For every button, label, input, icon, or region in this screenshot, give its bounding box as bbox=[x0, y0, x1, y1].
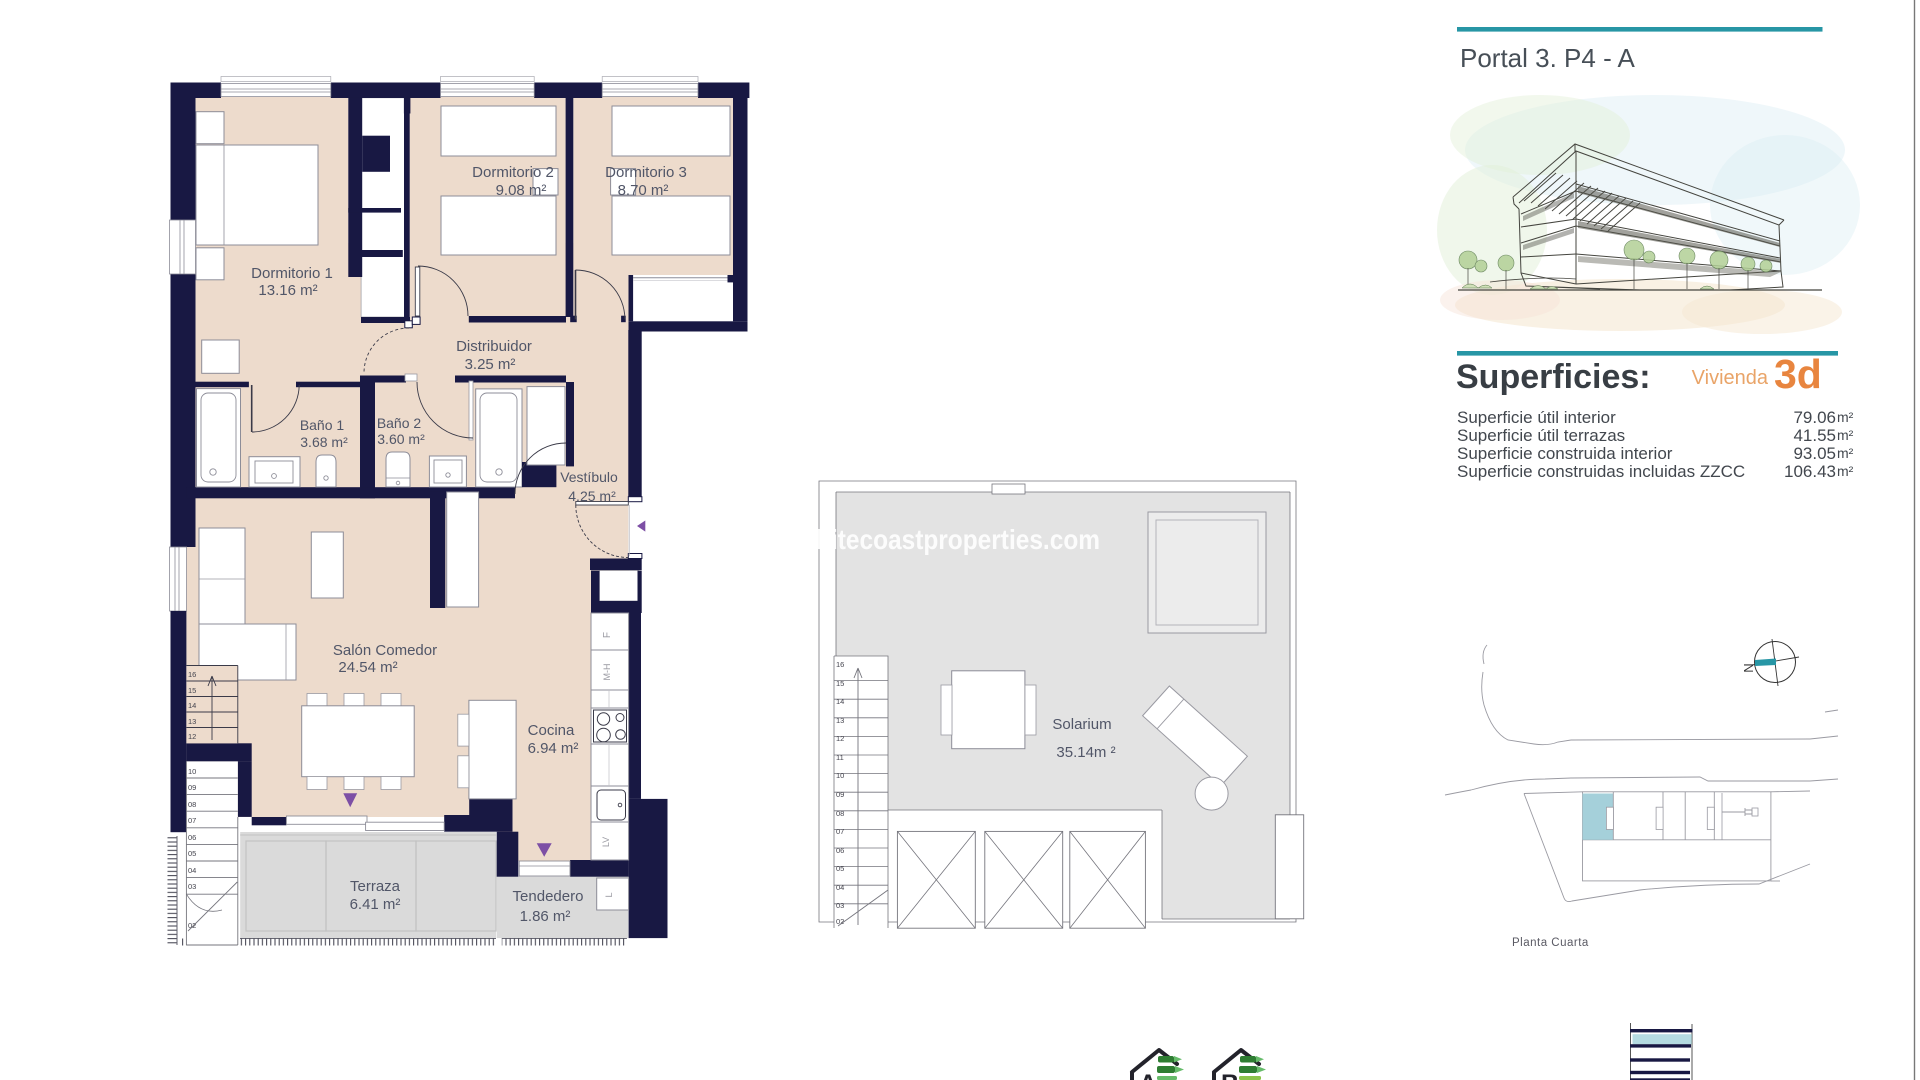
svg-text:03: 03 bbox=[188, 882, 196, 891]
svg-text:12: 12 bbox=[836, 734, 844, 743]
svg-text:02: 02 bbox=[188, 921, 196, 930]
svg-text:3.68 m²: 3.68 m² bbox=[300, 434, 348, 450]
svg-text:Superficies:: Superficies: bbox=[1456, 358, 1651, 396]
svg-text:Salón Comedor: Salón Comedor bbox=[333, 642, 437, 659]
svg-text:06: 06 bbox=[836, 846, 844, 855]
svg-text:41.55: 41.55 bbox=[1793, 426, 1836, 445]
svg-text:24.54 m²: 24.54 m² bbox=[338, 659, 397, 676]
svg-text:12: 12 bbox=[188, 732, 196, 741]
svg-text:Tendedero: Tendedero bbox=[513, 888, 584, 905]
svg-text:07: 07 bbox=[188, 816, 196, 825]
svg-text:Baño 1: Baño 1 bbox=[300, 417, 345, 433]
svg-text:05: 05 bbox=[836, 864, 844, 873]
svg-text:9.08 m²: 9.08 m² bbox=[496, 182, 547, 199]
svg-text:10: 10 bbox=[188, 767, 196, 776]
svg-text:15: 15 bbox=[188, 686, 196, 695]
svg-text:1.86 m²: 1.86 m² bbox=[520, 908, 571, 925]
svg-text:79.06: 79.06 bbox=[1793, 408, 1836, 427]
svg-text:Planta Cuarta: Planta Cuarta bbox=[1512, 937, 1589, 949]
svg-text:whitecoastproperties.com: whitecoastproperties.com bbox=[796, 524, 1100, 555]
svg-text:6.41 m²: 6.41 m² bbox=[350, 896, 401, 913]
svg-text:3d: 3d bbox=[1774, 351, 1822, 397]
svg-text:4.25 m²: 4.25 m² bbox=[568, 488, 616, 504]
svg-text:6.94 m²: 6.94 m² bbox=[528, 740, 579, 757]
svg-text:m²: m² bbox=[1837, 409, 1854, 425]
svg-text:106.43: 106.43 bbox=[1784, 462, 1836, 481]
svg-text:Superficie construidas incluid: Superficie construidas incluidas ZZCC bbox=[1457, 462, 1745, 481]
svg-text:16: 16 bbox=[836, 660, 844, 669]
svg-text:11: 11 bbox=[836, 753, 844, 762]
svg-text:Vestíbulo: Vestíbulo bbox=[560, 469, 618, 485]
svg-text:15: 15 bbox=[836, 679, 844, 688]
svg-text:N: N bbox=[1741, 663, 1756, 672]
svg-text:14: 14 bbox=[188, 701, 196, 710]
svg-text:Dormitorio 2: Dormitorio 2 bbox=[472, 164, 554, 181]
svg-text:09: 09 bbox=[188, 783, 196, 792]
svg-text:06: 06 bbox=[188, 833, 196, 842]
svg-text:Cocina: Cocina bbox=[528, 722, 575, 739]
svg-text:m²: m² bbox=[1837, 427, 1854, 443]
svg-text:8.70 m²: 8.70 m² bbox=[618, 182, 669, 199]
svg-text:13: 13 bbox=[836, 716, 844, 725]
svg-text:04: 04 bbox=[836, 883, 844, 892]
svg-text:Dormitorio 1: Dormitorio 1 bbox=[251, 265, 333, 282]
svg-text:Baño 2: Baño 2 bbox=[377, 415, 422, 431]
svg-text:LV: LV bbox=[601, 837, 611, 847]
svg-text:L: L bbox=[604, 892, 614, 897]
svg-text:93.05: 93.05 bbox=[1793, 444, 1836, 463]
svg-text:08: 08 bbox=[836, 809, 844, 818]
svg-text:F: F bbox=[602, 632, 613, 638]
svg-text:16: 16 bbox=[188, 670, 196, 679]
svg-text:m²: m² bbox=[1837, 463, 1854, 479]
svg-text:04: 04 bbox=[188, 866, 196, 875]
svg-text:35.14m ²: 35.14m ² bbox=[1056, 744, 1115, 761]
svg-text:m²: m² bbox=[1837, 445, 1854, 461]
svg-text:09: 09 bbox=[836, 790, 844, 799]
svg-text:07: 07 bbox=[836, 827, 844, 836]
svg-text:14: 14 bbox=[836, 697, 844, 706]
svg-text:08: 08 bbox=[188, 800, 196, 809]
svg-text:A: A bbox=[1139, 1070, 1157, 1080]
svg-text:Distribuidor: Distribuidor bbox=[456, 338, 532, 355]
svg-text:Terraza: Terraza bbox=[350, 878, 401, 895]
svg-text:13.16 m²: 13.16 m² bbox=[258, 282, 317, 299]
svg-text:Dormitorio 3: Dormitorio 3 bbox=[605, 164, 687, 181]
svg-text:13: 13 bbox=[188, 717, 196, 726]
svg-text:Solarium: Solarium bbox=[1052, 716, 1111, 733]
svg-text:M-H: M-H bbox=[602, 664, 612, 681]
svg-text:3.25 m²: 3.25 m² bbox=[465, 356, 516, 373]
svg-text:10: 10 bbox=[836, 771, 844, 780]
svg-text:Portal 3. P4 - A: Portal 3. P4 - A bbox=[1460, 43, 1636, 73]
svg-text:03: 03 bbox=[836, 901, 844, 910]
svg-text:Vivienda: Vivienda bbox=[1692, 367, 1769, 389]
svg-text:B: B bbox=[1221, 1070, 1239, 1080]
svg-text:Superficie útil terrazas: Superficie útil terrazas bbox=[1457, 426, 1625, 445]
svg-text:Superficie construida interior: Superficie construida interior bbox=[1457, 444, 1673, 463]
svg-text:05: 05 bbox=[188, 849, 196, 858]
svg-text:Superficie útil interior: Superficie útil interior bbox=[1457, 408, 1616, 427]
svg-text:3.60 m²: 3.60 m² bbox=[377, 431, 425, 447]
